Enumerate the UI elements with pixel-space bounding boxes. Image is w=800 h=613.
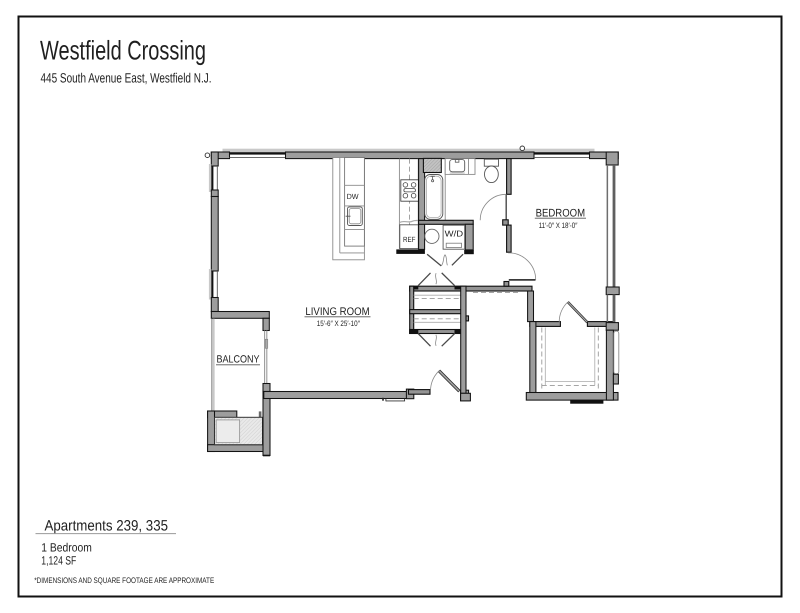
svg-text:W/D: W/D xyxy=(445,228,464,238)
svg-text:1,124 SF: 1,124 SF xyxy=(41,553,76,567)
svg-text:Apartments 239, 335: Apartments 239, 335 xyxy=(45,517,169,534)
svg-text:BEDROOM: BEDROOM xyxy=(536,207,586,219)
svg-text:Westfield Crossing: Westfield Crossing xyxy=(40,36,206,66)
svg-text:DW: DW xyxy=(347,192,360,201)
svg-text:1 Bedroom: 1 Bedroom xyxy=(41,540,92,554)
svg-text:BALCONY: BALCONY xyxy=(217,354,260,366)
svg-text:REF: REF xyxy=(403,235,416,244)
svg-text:*DIMENSIONS AND SQUARE FOOTAGE: *DIMENSIONS AND SQUARE FOOTAGE ARE APPRO… xyxy=(34,576,214,585)
svg-text:11′-0″ X 18′-0″: 11′-0″ X 18′-0″ xyxy=(539,221,578,230)
svg-text:15′-6″ X 25′-10″: 15′-6″ X 25′-10″ xyxy=(317,319,360,328)
svg-text:445 South Avenue East, Westfie: 445 South Avenue East, Westfield N.J. xyxy=(41,71,212,86)
